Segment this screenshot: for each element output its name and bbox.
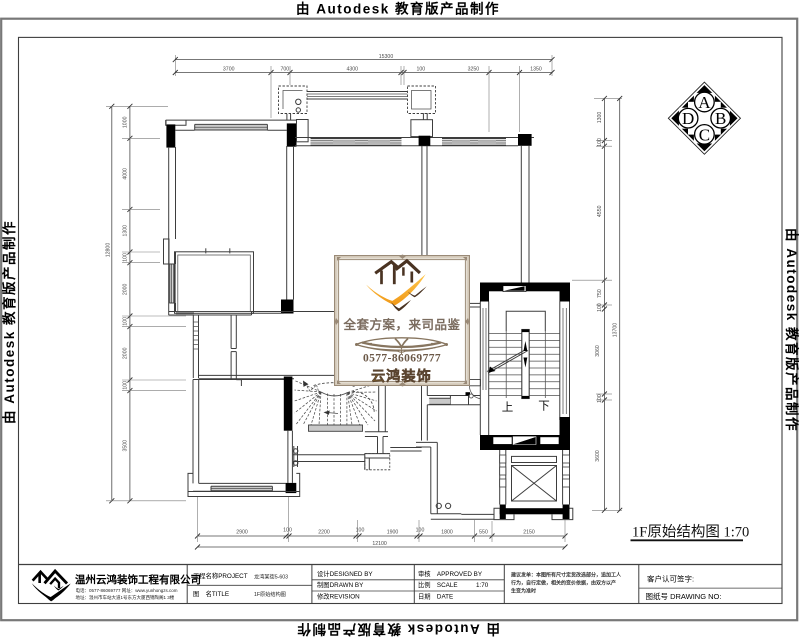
svg-text:由 Autodesk 教育版产品制作: 由 Autodesk 教育版产品制作 [296, 1, 500, 17]
svg-text:12800: 12800 [106, 243, 112, 258]
svg-text:2000: 2000 [123, 347, 129, 359]
svg-text:100: 100 [123, 253, 129, 262]
svg-text:由 Autodesk 教育版产品制作: 由 Autodesk 教育版产品制作 [784, 228, 800, 432]
svg-text:3700: 3700 [223, 67, 235, 73]
svg-text:15300: 15300 [379, 54, 394, 60]
svg-text:100: 100 [283, 528, 292, 534]
svg-text:全套方案，来司品鉴: 全套方案，来司品鉴 [342, 317, 460, 332]
svg-text:2900: 2900 [236, 530, 248, 536]
svg-text:700: 700 [280, 67, 289, 73]
svg-text:100: 100 [597, 303, 603, 312]
svg-text:1F原始结构图: 1F原始结构图 [254, 590, 286, 598]
svg-text:100: 100 [123, 381, 129, 390]
svg-text:12100: 12100 [372, 541, 387, 547]
svg-text:工程名称PROJECT: 工程名称PROJECT [193, 571, 248, 580]
svg-text:550: 550 [479, 530, 488, 536]
svg-text:1900: 1900 [387, 530, 399, 536]
svg-text:4550: 4550 [597, 205, 603, 217]
svg-text:3600: 3600 [595, 450, 601, 462]
svg-text:4300: 4300 [347, 67, 359, 73]
svg-text:1F原始结构图 1:70: 1F原始结构图 1:70 [632, 524, 749, 541]
svg-text:日期 DATE: 日期 DATE [418, 592, 453, 600]
svg-text:3500: 3500 [123, 440, 129, 452]
svg-text:龙湾某街5-603: 龙湾某街5-603 [254, 573, 288, 581]
svg-text:上: 上 [502, 401, 514, 414]
svg-text:生变为准时: 生变为准时 [511, 588, 536, 595]
svg-text:比例 SCALE: 比例 SCALE [418, 580, 458, 589]
svg-text:由 Autodesk 教育版产品制作: 由 Autodesk 教育版产品制作 [296, 622, 500, 638]
svg-text:100: 100 [597, 394, 603, 403]
svg-text:2000: 2000 [123, 284, 129, 296]
svg-text:100: 100 [416, 67, 425, 73]
svg-text:云鸿装饰: 云鸿装饰 [371, 368, 432, 384]
svg-text:1:70: 1:70 [476, 582, 489, 589]
svg-text:A: A [698, 93, 711, 112]
svg-text:750: 750 [597, 289, 603, 298]
svg-text:下: 下 [538, 401, 550, 413]
svg-text:1350: 1350 [530, 67, 542, 73]
svg-text:温州云鸿装饰工程有限公司: 温州云鸿装饰工程有限公司 [75, 573, 201, 586]
svg-text:设计DESIGNED BY: 设计DESIGNED BY [317, 569, 373, 578]
svg-text:由 Autodesk 教育版产品制作: 由 Autodesk 教育版产品制作 [1, 220, 17, 424]
svg-text:1300: 1300 [597, 112, 603, 124]
svg-text:1000: 1000 [123, 116, 129, 128]
svg-text:1300: 1300 [123, 225, 129, 237]
svg-text:2150: 2150 [523, 530, 535, 536]
svg-text:图纸号 DRAWING NO:: 图纸号 DRAWING NO: [646, 591, 722, 601]
svg-text:图 名TITLE: 图 名TITLE [193, 589, 229, 598]
svg-text:4000: 4000 [123, 168, 129, 180]
svg-text:100: 100 [597, 138, 603, 147]
svg-text:地址：温州市车站大道1号东方大厦西锦陶阁1 3楼: 地址：温州市车站大道1号东方大厦西锦陶阁1 3楼 [76, 594, 175, 601]
svg-text:C: C [699, 125, 710, 144]
svg-text:修改REVISION: 修改REVISION [317, 591, 360, 600]
svg-text:行为，自行定做，相关的变价依据，由双方以产: 行为，自行定做，相关的变价依据，由双方以产 [510, 580, 616, 587]
svg-text:100: 100 [416, 528, 425, 534]
svg-text:100: 100 [356, 528, 365, 534]
svg-text:审核 APPROVED BY: 审核 APPROVED BY [418, 569, 483, 578]
svg-text:0577-86069777: 0577-86069777 [363, 353, 441, 365]
svg-text:13700: 13700 [613, 323, 619, 338]
svg-text:3060: 3060 [595, 345, 601, 357]
svg-text:3250: 3250 [468, 67, 480, 73]
svg-text:制图DRAWN BY: 制图DRAWN BY [317, 580, 364, 589]
svg-text:建议发单：本图所有尺寸定货改选部分，追加工人: 建议发单：本图所有尺寸定货改选部分，追加工人 [510, 572, 622, 579]
svg-text:D: D [682, 109, 694, 128]
svg-text:1800: 1800 [441, 530, 453, 536]
svg-text:客户认可签字:: 客户认可签字: [647, 574, 694, 584]
svg-text:电话：0577-86069777 网址：www.yunhon: 电话：0577-86069777 网址：www.yunhongzs.com [76, 587, 178, 594]
svg-text:B: B [715, 109, 726, 128]
svg-text:2200: 2200 [318, 530, 330, 536]
svg-text:100: 100 [123, 317, 129, 326]
